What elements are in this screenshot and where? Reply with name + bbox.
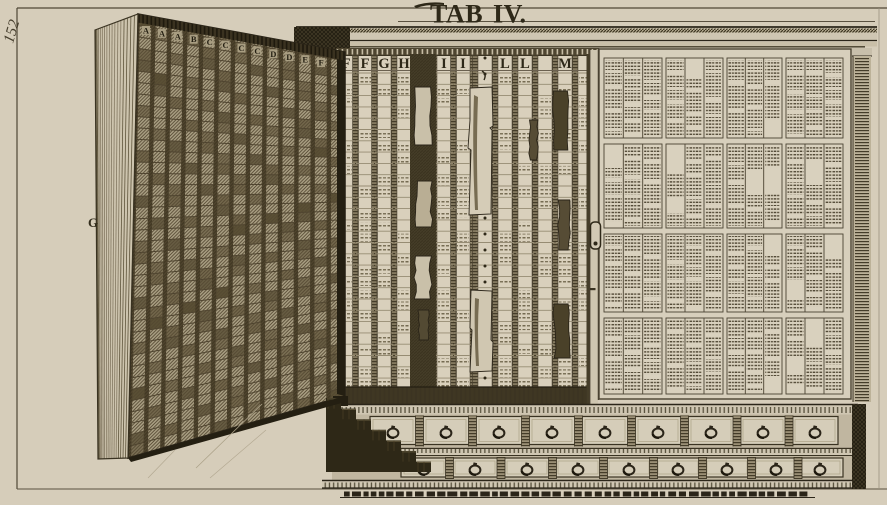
- svg-text:D: D: [286, 52, 292, 62]
- svg-text:M: M: [558, 56, 572, 72]
- svg-text:A: A: [143, 26, 150, 36]
- svg-text:L: L: [520, 56, 530, 72]
- svg-text:C: C: [254, 46, 260, 56]
- svg-text:F: F: [361, 56, 370, 72]
- svg-text:B: B: [191, 34, 197, 44]
- svg-text:L: L: [500, 56, 510, 72]
- svg-text:F: F: [318, 58, 323, 68]
- svg-text:IV.: IV.: [493, 0, 527, 29]
- svg-text:I: I: [441, 56, 447, 72]
- svg-text:G: G: [88, 215, 98, 230]
- svg-text:C: C: [223, 40, 229, 50]
- svg-text:H: H: [398, 56, 410, 72]
- svg-text:I: I: [460, 56, 466, 72]
- svg-text:A: A: [175, 31, 182, 41]
- svg-text:D: D: [270, 49, 276, 59]
- svg-text:C: C: [238, 43, 244, 53]
- svg-text:A: A: [159, 28, 166, 38]
- svg-text:E: E: [302, 55, 308, 65]
- svg-text:C: C: [207, 37, 213, 47]
- svg-text:G: G: [378, 56, 389, 72]
